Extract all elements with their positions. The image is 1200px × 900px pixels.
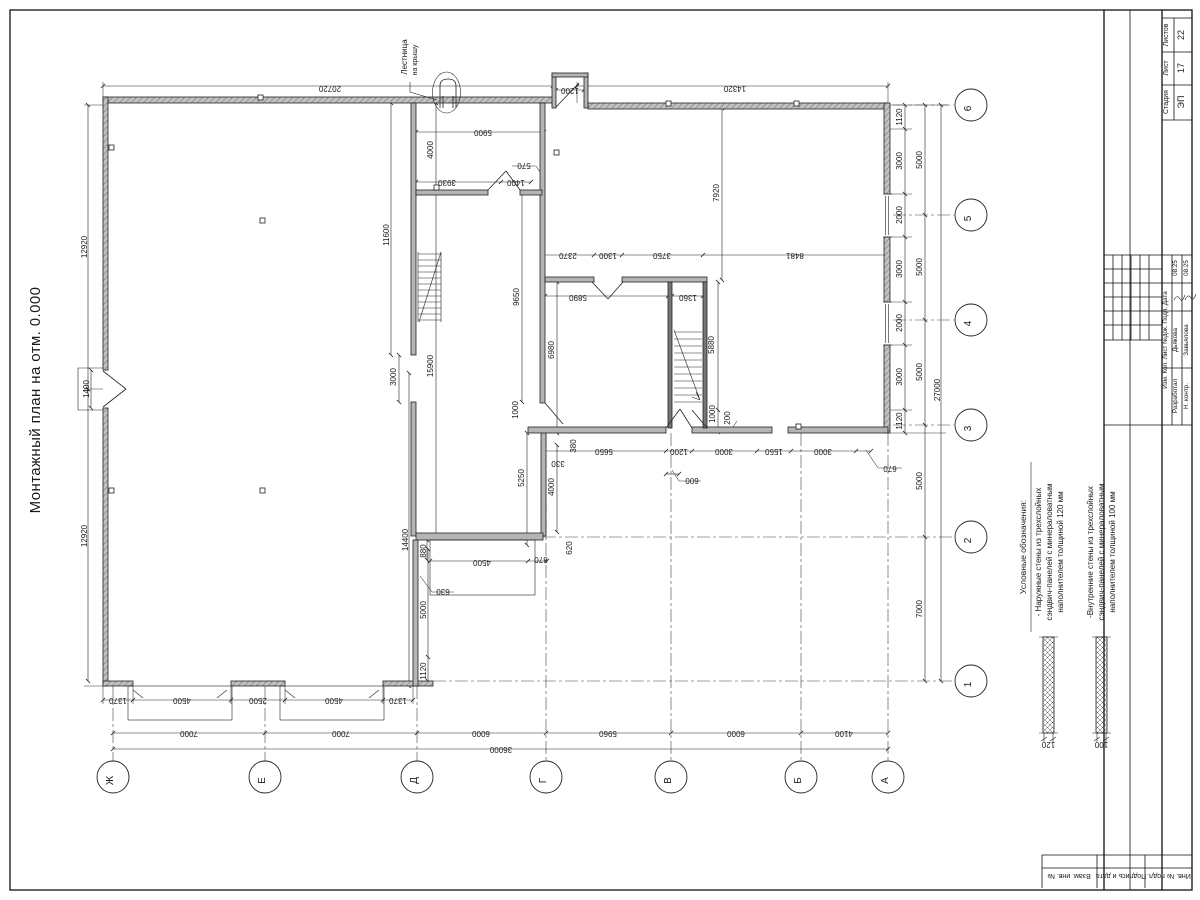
- dimension-label: 5890: [569, 293, 587, 302]
- dimension-label: 1550: [765, 447, 783, 456]
- dimension-label: 4500: [173, 696, 191, 705]
- dimension-label: 6000: [472, 729, 490, 738]
- floor-plan-drawing: 2072014320120059003930140057040001160012…: [0, 0, 1200, 900]
- stamp-stage-label: Стадия: [1163, 90, 1170, 114]
- dimension-label: 3750: [653, 251, 671, 260]
- stamp-role: Разработал: [1171, 379, 1179, 414]
- dimension-label: 15900: [426, 354, 435, 377]
- dimension-label: 1120: [895, 412, 904, 430]
- axis-label: Г: [538, 777, 549, 783]
- dimension-label: 1370: [389, 696, 407, 705]
- walls: [103, 73, 892, 686]
- axis-bubbles-bottom: ЖЕДГВБА: [97, 761, 904, 793]
- dimension-label: 1000: [708, 405, 717, 423]
- dimension-label: 330: [551, 459, 565, 468]
- axis-bubble: [785, 761, 817, 793]
- dimension-label: 11600: [382, 224, 391, 246]
- axis-label: 3: [963, 425, 974, 431]
- dimension-label: 36000: [489, 745, 512, 754]
- stamp-name: Дьякова: [1172, 327, 1179, 352]
- legend-thickness: 120: [1041, 740, 1055, 749]
- dimension-label: 5000: [419, 601, 428, 619]
- dimension-labels: 2072014320120059003930140057040001160012…: [80, 84, 942, 754]
- dimension-label: 5900: [474, 128, 492, 137]
- dimension-label: 1200: [561, 86, 579, 95]
- signatures: [1174, 294, 1196, 300]
- legend-thickness: 100: [1094, 740, 1108, 749]
- roof-ladder-label: Лестница на крышу: [400, 39, 419, 76]
- roof-ladder-label-line1: Лестница: [400, 39, 409, 75]
- axis-label: 5: [963, 215, 974, 221]
- dimension-label: 5000: [915, 258, 924, 276]
- roof-ladder-icon: [410, 72, 461, 113]
- dimension-label: 2500: [249, 696, 267, 705]
- axis-bubble: [955, 521, 987, 553]
- dimension-label: 5000: [915, 363, 924, 381]
- dimension-label: 3000: [895, 152, 904, 170]
- dimension-label: 1120: [419, 662, 428, 680]
- dimension-label: 4500: [325, 696, 343, 705]
- dimension-label: 5250: [517, 469, 526, 487]
- legend: Условные обозначения: - Наружные стены и…: [1018, 462, 1117, 749]
- axis-bubble: [955, 409, 987, 441]
- legend-item-text: наполнителем толщиной 120 мм: [1056, 491, 1065, 612]
- dimension-label: 1400: [507, 178, 525, 187]
- axis-bubble: [401, 761, 433, 793]
- roof-ladder-label-line2: на крышу: [412, 44, 419, 75]
- axis-label: А: [880, 777, 891, 784]
- plan-details: [78, 72, 801, 720]
- dimension-label: 620: [565, 541, 574, 555]
- axis-label: В: [663, 777, 674, 784]
- title-block: Листов 22 Лист 17 Стадия ЭП Изм. Кол. Ли…: [1042, 10, 1196, 890]
- stamp-side-label: Инв. № подл.: [1147, 872, 1191, 879]
- stamp-date: 08.25: [1183, 260, 1190, 276]
- dimension-label: 1300: [599, 251, 617, 260]
- dimension-label: 1000: [511, 401, 520, 419]
- stamp-change-header: Изм. Кол. Лист №док. Подп. Дата: [1162, 291, 1169, 389]
- dimension-label: 1400: [82, 380, 91, 398]
- legend-item-text: наполнителем толщиной 100 мм: [1108, 491, 1117, 612]
- dimension-label: 380: [569, 439, 578, 453]
- dimension-label: 14320: [723, 84, 746, 93]
- stamp-name: Завьялова: [1183, 324, 1190, 356]
- dimension-label: 8481: [786, 251, 804, 260]
- dimension-label: 2000: [895, 314, 904, 332]
- stair-middle: [674, 330, 702, 402]
- dimension-label: 7000: [915, 600, 924, 618]
- dimension-label: 1370: [109, 696, 127, 705]
- dimension-label: 5650: [595, 447, 613, 456]
- dimension-label: 27000: [933, 378, 942, 401]
- dimension-label: 2000: [895, 206, 904, 224]
- dimension-label: 1120: [895, 108, 904, 126]
- dimension-label: 4100: [835, 729, 853, 738]
- axis-bubble: [530, 761, 562, 793]
- axis-label: 6: [963, 105, 974, 111]
- stamp-sheet-label: Лист: [1163, 60, 1170, 76]
- dimension-label: 3000: [814, 447, 832, 456]
- axis-label: 4: [963, 320, 974, 326]
- axis-label: Д: [409, 777, 420, 784]
- stamp-stage-value: ЭП: [1176, 96, 1186, 109]
- dimension-label: 7920: [712, 184, 721, 202]
- dimension-label: 5880: [707, 336, 716, 354]
- axis-bubble: [872, 761, 904, 793]
- legend-wall-swatch-outer: 120: [1039, 637, 1058, 749]
- dimension-label: 870: [534, 555, 548, 564]
- axis-bubbles-right: 654321: [955, 89, 987, 697]
- dimension-label: 670: [883, 464, 897, 473]
- dimension-label: 3000: [895, 260, 904, 278]
- legend-item-text: - Наружные стены из трехслойных: [1034, 488, 1043, 617]
- dimension-label: 4000: [547, 478, 556, 496]
- stamp-side-label: Взам. инв. №: [1047, 872, 1090, 879]
- dimension-label: 3000: [895, 368, 904, 386]
- dimension-label: 12920: [80, 524, 89, 547]
- dimension-label: 200: [723, 411, 732, 425]
- legend-item-text: -Внутренние стены из трехслойных: [1086, 486, 1095, 618]
- dimension-label: 5000: [915, 151, 924, 169]
- axis-label: Ж: [105, 775, 116, 785]
- axis-label: Е: [257, 777, 268, 784]
- dimension-label: 3000: [715, 447, 733, 456]
- dimension-label: 880: [419, 544, 428, 558]
- dimension-label: 600: [685, 476, 699, 485]
- dimension-label: 1360: [679, 293, 697, 302]
- dimension-label: 1200: [670, 447, 688, 456]
- dimension-label: 7000: [180, 729, 198, 738]
- stamp-sheet-value: 17: [1176, 63, 1186, 73]
- axis-bubble: [955, 665, 987, 697]
- axis-label: 1: [963, 681, 974, 687]
- dimension-label: 4000: [426, 141, 435, 159]
- dimension-label: 5000: [915, 472, 924, 490]
- stamp-role: Н. контр.: [1183, 383, 1190, 409]
- axis-bubble: [249, 761, 281, 793]
- dimension-label: 4500: [473, 558, 491, 567]
- axis-bubble: [655, 761, 687, 793]
- axis-bubble: [955, 89, 987, 121]
- dimension-label: 3930: [438, 178, 456, 187]
- axis-label: 2: [963, 537, 974, 543]
- dimension-label: 6000: [727, 729, 745, 738]
- stair-left: [418, 252, 441, 322]
- axis-bubble: [955, 199, 987, 231]
- legend-wall-swatch-inner: 100: [1092, 637, 1111, 749]
- stamp-date: 08.25: [1172, 260, 1179, 276]
- stamp-sheets-value: 22: [1176, 30, 1186, 40]
- axis-label: Б: [793, 777, 804, 784]
- dimension-label: 6980: [547, 341, 556, 359]
- dimension-label: 2370: [559, 251, 577, 260]
- dimension-label: 20720: [318, 84, 341, 93]
- legend-item-text: сэндвич-панелей с минераловатным: [1045, 484, 1054, 621]
- dimension-label: 14400: [401, 528, 410, 551]
- dimension-label: 7000: [332, 729, 350, 738]
- drawing-title: Монтажный план на отм. 0.000: [27, 287, 44, 514]
- dimension-label: 570: [517, 161, 531, 170]
- dimension-label: 5960: [599, 729, 617, 738]
- dimension-label: 3000: [389, 368, 398, 386]
- legend-heading: Условные обозначения:: [1018, 500, 1028, 594]
- dimension-label: 9650: [512, 288, 521, 306]
- axis-bubble: [955, 304, 987, 336]
- stamp-sheets-label: Листов: [1163, 23, 1170, 46]
- dimension-label: 12920: [80, 235, 89, 258]
- dimension-label: 630: [436, 587, 450, 596]
- stamp-side-label: Подпись и дата: [1096, 872, 1146, 879]
- drawing-sheet: 2072014320120059003930140057040001160012…: [0, 0, 1200, 900]
